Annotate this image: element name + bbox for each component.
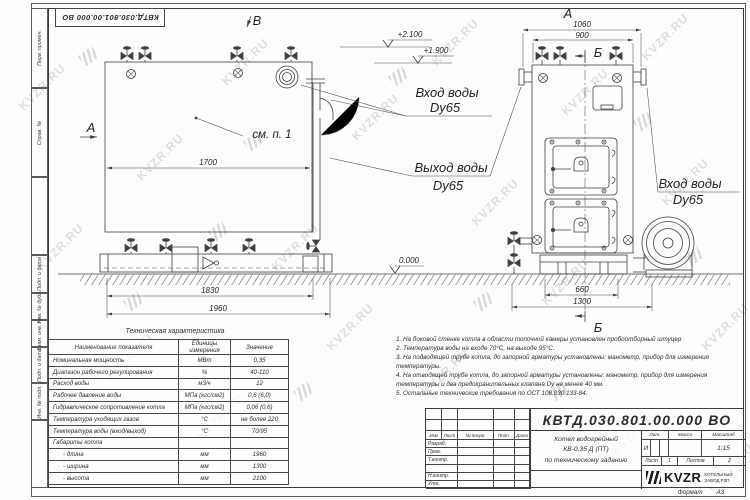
spec-name: Диапазон рабочего регулирования (49, 366, 179, 378)
row-prov: Пров. (426, 448, 458, 456)
spec-units: °С (179, 413, 231, 425)
margin-label: Инв. № подл. (37, 385, 43, 418)
spec-units: % (179, 366, 231, 378)
spec-value: 70/95 (231, 425, 289, 437)
company-name: КОТЕЛЬНЫЙ ЗАВОД РЗП (704, 472, 732, 483)
margin-cell-perv-primen: Перв. примен. (31, 8, 48, 88)
spec-units: °С (179, 425, 231, 437)
col-izm: Изм (426, 431, 442, 440)
doc-number-flipped-box: КВТД.030.801.00.000 ВО (55, 8, 165, 27)
product-title-line1: Котел водогрейный (554, 435, 618, 445)
sheet-value: 1 (662, 457, 678, 466)
spec-value: 40-110 (231, 366, 289, 378)
margin-cell-inv-podl: Инв. № подл. (31, 383, 48, 420)
note-line-5: 5. Остальные технические требования по О… (396, 390, 744, 399)
margin-cell-vzam-inv: Взам. инв. № (31, 320, 48, 347)
spec-value: 0,6 (6,0) (231, 390, 289, 402)
sheet-label: Лист (642, 457, 662, 466)
revision-header-row: Изм Лист № докум. Подп. Дата (426, 431, 530, 440)
title-block-doc-number: КВТД.030.801.00.000 ВО (530, 409, 743, 431)
spec-header-units: Единицы измерения (179, 340, 231, 355)
title-block-right: Лит. Масса Масштаб И 1:15 Лист 1 Листов … (641, 431, 745, 489)
spec-table: Наименование показателя Единицы измерени… (48, 339, 289, 485)
spec-name: Номинальная мощность (49, 355, 179, 367)
margin-cell-inv-dubl: Инв. № дубл. (31, 293, 48, 320)
spec-row: Рабочее давление водыМПа (кгс/см2)0,6 (6… (49, 390, 289, 402)
note-line-3: 3. На подводящей трубе котла, до запорно… (396, 354, 744, 372)
margin-cell-sprav-no: Справ. № (31, 88, 48, 177)
lit-value: И (642, 440, 651, 457)
spec-row: Температура воды (вход/выход)°С70/95 (49, 425, 289, 437)
margin-label: Справ. № (37, 120, 43, 145)
spec-units: м3/ч (179, 378, 231, 390)
spec-units: МПа (кгс/см2) (179, 402, 231, 414)
mass-value (669, 440, 702, 457)
spec-name: Рабочее давление воды (49, 390, 179, 402)
col-list: Лист (442, 431, 458, 440)
spec-row: Температура уходящих газов°Сне более 220 (49, 413, 289, 425)
signature-rows: Разраб. Пров. Т.контр. Н.контр. Утв. (426, 440, 530, 489)
revision-table (426, 409, 530, 431)
spec-table-title: Техническая характеристика (60, 328, 290, 335)
product-title-empty-cell (530, 471, 641, 489)
spec-row: Гидравлическое сопротивление котлаМПа (к… (49, 402, 289, 414)
spec-row: Габариты котла (49, 437, 289, 449)
sheets-value: 2 (714, 457, 746, 466)
scale-value: 1:15 (702, 440, 746, 457)
spec-value: не более 220 (231, 413, 289, 425)
drawing-sheet: KVZR.RU KVZR.RU KVZR.RU KVZR.RU KVZR.RU … (0, 0, 750, 500)
spec-value (231, 437, 289, 449)
spec-value: 1300 (231, 461, 289, 473)
margin-label: Подп. и дата (37, 348, 43, 382)
spec-value: 12 (231, 378, 289, 390)
title-block: КВТД.030.801.00.000 ВО Изм Лист № докум.… (425, 408, 744, 488)
spec-name: - ширина (49, 461, 179, 473)
product-title-line2: КВ-0,35 Д (ПТ) (563, 445, 608, 455)
doc-number-flipped: КВТД.030.801.00.000 ВО (62, 13, 159, 22)
col-podp: Подп. (494, 431, 515, 440)
spec-units: мм (179, 461, 231, 473)
spec-value: 2100 (231, 472, 289, 484)
mass-label: Масса (669, 431, 702, 440)
margin-label: Перв. примен. (37, 30, 43, 66)
format-label: Формат (678, 489, 703, 496)
margin-cell-empty (31, 420, 48, 488)
spec-row: Расход водым3/ч12 (49, 378, 289, 390)
col-docnum: № докум. (458, 431, 494, 440)
company-name-line2: ЗАВОД РЗП (704, 478, 732, 484)
spec-name: - длина (49, 449, 179, 461)
spec-units: мм (179, 472, 231, 484)
margin-label: Подп. и дата (37, 257, 43, 291)
format-value: А3 (717, 489, 725, 496)
row-utv: Утв. (426, 481, 458, 489)
spec-name: - высота (49, 472, 179, 484)
note-line-1: 1. На боковой стенке котла в области топ… (396, 336, 744, 345)
lit-label: Лит. (642, 431, 669, 440)
spec-units: мм (179, 449, 231, 461)
notes-list: 1. На боковой стенке котла в области топ… (396, 336, 744, 399)
spec-row: Номинальная мощностьМВт0,35 (49, 355, 289, 367)
company-area: KVZR КОТЕЛЬНЫЙ ЗАВОД РЗП (642, 466, 745, 489)
spec-name: Расход воды (49, 378, 179, 390)
spec-row: - высотамм2100 (49, 472, 289, 484)
row-empty (426, 465, 458, 473)
margin-cell-podp-data-1: Подп. и дата (31, 255, 48, 293)
spec-row: - ширинамм1300 (49, 461, 289, 473)
note-line-2: 2. Температура воды на входе 70°С, на вы… (396, 345, 744, 354)
spec-header-name: Наименование показателя (49, 340, 179, 355)
spec-value: 0,35 (231, 355, 289, 367)
kvzr-logo-icon (646, 471, 661, 484)
scale-label: Масштаб (702, 431, 746, 440)
margin-label: Взам. инв. № (37, 317, 43, 350)
product-title-line3: по техническому заданию (545, 456, 628, 466)
row-tkontr: Т.контр. (426, 456, 458, 464)
spec-units (179, 437, 231, 449)
row-razrab: Разраб. (426, 440, 458, 448)
spec-row: - длинамм1960 (49, 449, 289, 461)
product-title: Котел водогрейный КВ-0,35 Д (ПТ) по техн… (530, 431, 641, 471)
spec-row: Диапазон рабочего регулирования%40-110 (49, 366, 289, 378)
spec-value: 0,06 (0,6) (231, 402, 289, 414)
note-line-4: 4. На отводящей трубе котла, до запорной… (396, 372, 744, 390)
kvzr-brand-text: KVZR (664, 470, 701, 485)
sheets-label: Листов (678, 457, 714, 466)
spec-header-row: Наименование показателя Единицы измерени… (49, 340, 289, 355)
spec-units: МПа (кгс/см2) (179, 390, 231, 402)
col-data: Дата (515, 431, 530, 440)
margin-cell-empty (31, 177, 48, 255)
spec-name: Температура воды (вход/выход) (49, 425, 179, 437)
format-note: Формат А3 (658, 489, 744, 496)
margin-cell-podp-data-2: Подп. и дата (31, 347, 48, 383)
spec-header-value: Значение (231, 340, 289, 355)
spec-units: МВт (179, 355, 231, 367)
spec-name: Гидравлическое сопротивление котла (49, 402, 179, 414)
spec-name: Габариты котла (49, 437, 179, 449)
spec-value: 1960 (231, 449, 289, 461)
spec-name: Температура уходящих газов (49, 413, 179, 425)
row-nkontr: Н.контр. (426, 473, 458, 481)
